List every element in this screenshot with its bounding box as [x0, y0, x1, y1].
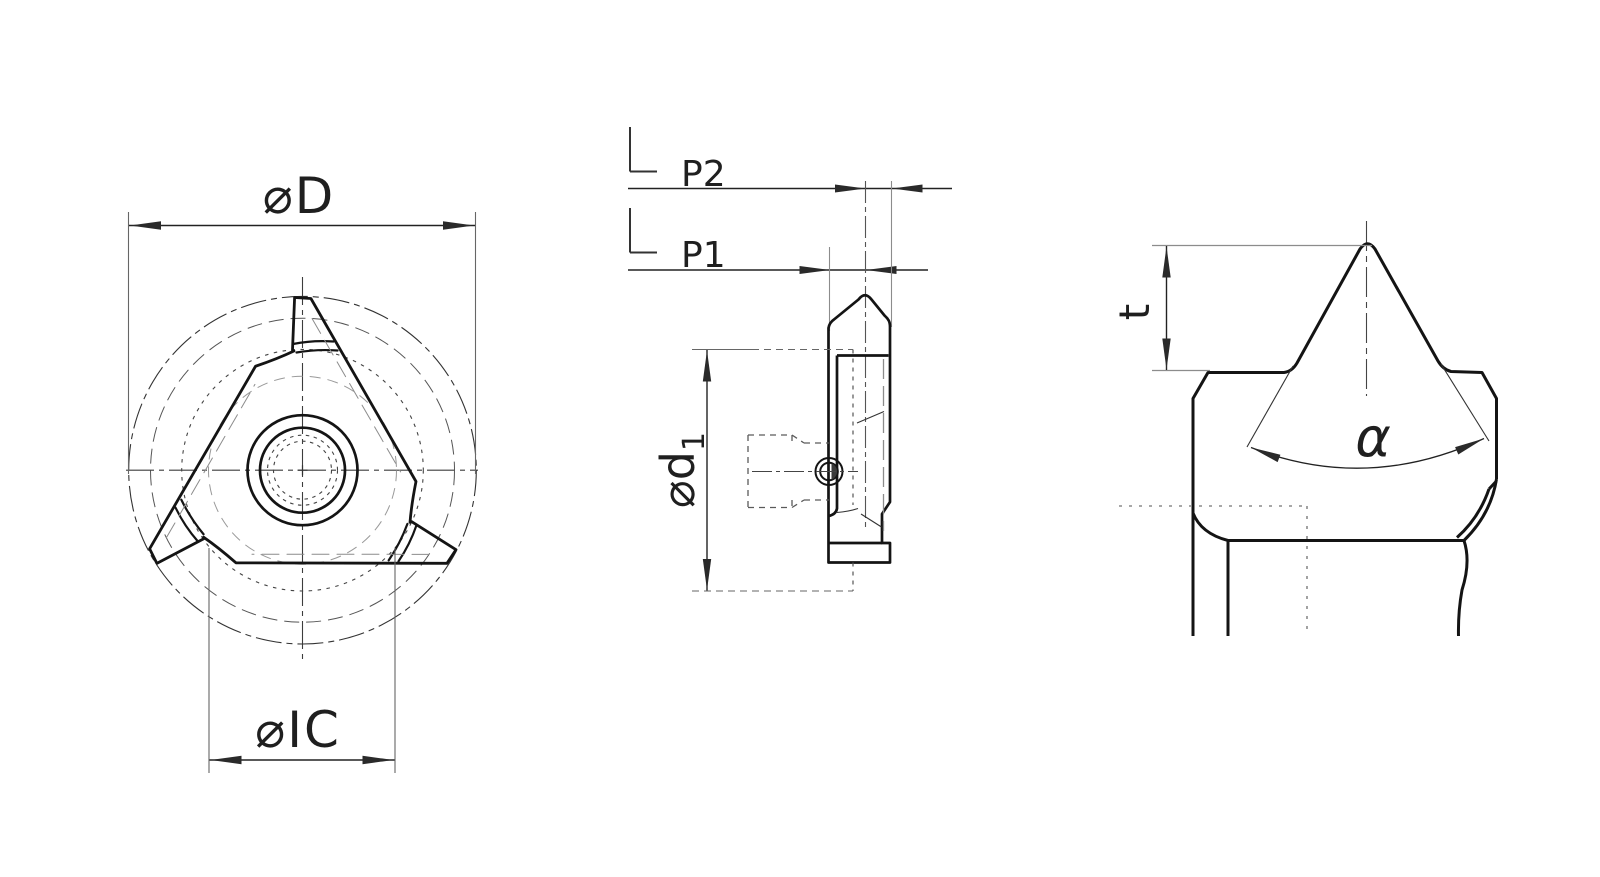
dim-p2: P2 — [628, 127, 952, 195]
arrowhead-left — [1251, 448, 1280, 463]
arrowhead-down — [1162, 339, 1170, 370]
arrowhead-left — [211, 756, 242, 764]
arrowhead-right — [1455, 439, 1484, 455]
datum-bracket-icon — [630, 208, 657, 253]
label-alpha: α — [1355, 406, 1391, 469]
arrowhead-to-face — [892, 185, 923, 193]
left-fillet — [1193, 513, 1228, 636]
crop-boundary-dotted — [1119, 506, 1307, 636]
arrowhead-right — [363, 756, 394, 764]
flank-extension-left — [1247, 366, 1293, 447]
side-view: P2 P1 — [628, 127, 952, 591]
arrowhead-up — [703, 351, 711, 382]
center-mark — [298, 465, 308, 475]
arrowhead-to-face — [800, 266, 831, 274]
side-body — [829, 295, 891, 562]
arrowhead-right — [443, 221, 474, 229]
label-inscribed-circle: ⌀IC — [255, 701, 341, 759]
label-d1: ⌀d1 — [651, 432, 712, 508]
arrowhead-to-center — [835, 185, 866, 193]
arrowhead-left — [130, 221, 161, 229]
surface-line-upper — [857, 412, 884, 424]
arrowhead-up — [1162, 247, 1170, 278]
dim-d1: ⌀d1 — [651, 350, 853, 592]
flank-extension-right — [1441, 364, 1489, 441]
label-outer-diameter: ⌀D — [263, 167, 336, 225]
dim-alpha: α — [1247, 364, 1489, 469]
detail-outline — [1193, 244, 1497, 636]
datum-bracket-icon — [630, 127, 657, 172]
dim-t: t — [1110, 246, 1372, 371]
surface-line-lower — [861, 514, 882, 527]
detail-view: α t — [1110, 221, 1497, 636]
drawing-canvas: ⌀D ⌀IC P2 P1 — [0, 0, 1600, 877]
surface-line-step — [837, 509, 858, 513]
label-t: t — [1110, 304, 1159, 320]
arrowhead-down — [703, 559, 711, 590]
dim-p1: P1 — [628, 208, 928, 276]
lobe-bottom-right — [201, 435, 458, 654]
lobe-bottom-left — [96, 346, 353, 565]
technical-drawing: ⌀D ⌀IC P2 P1 — [0, 0, 1600, 877]
tooth-profile — [1193, 244, 1497, 636]
front-view: ⌀D ⌀IC — [96, 167, 478, 773]
right-lower-edge — [1458, 541, 1467, 637]
